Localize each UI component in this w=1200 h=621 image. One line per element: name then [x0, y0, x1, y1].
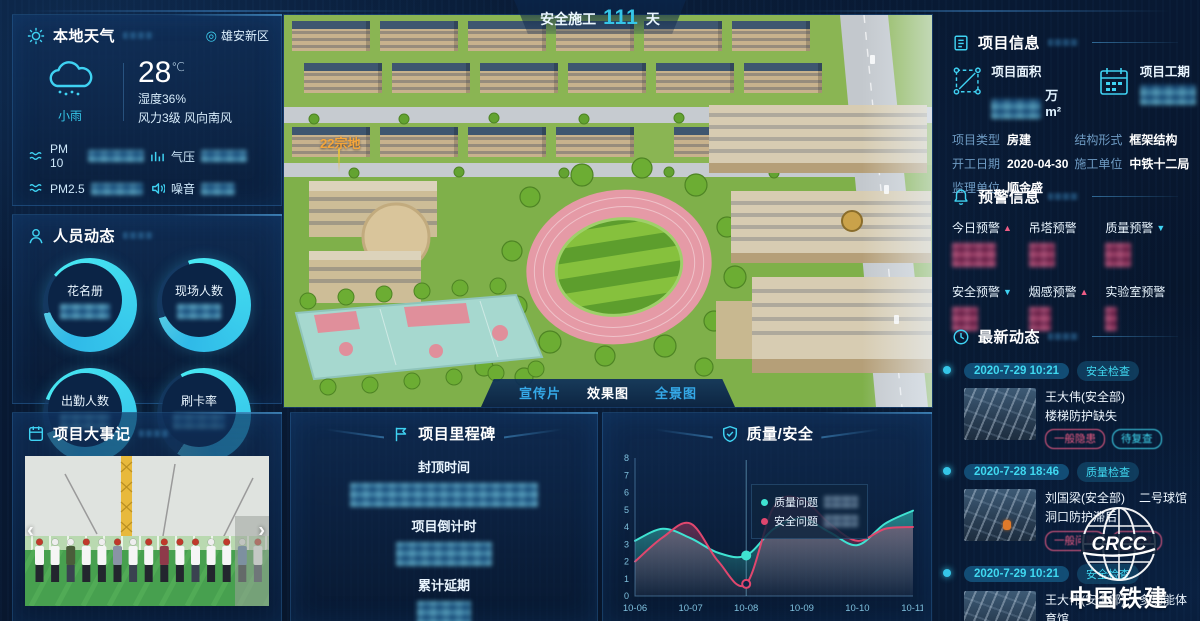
pm-waves-icon	[29, 150, 44, 163]
svg-text:10-06: 10-06	[623, 603, 647, 614]
header-wing	[821, 429, 879, 439]
bell-icon	[952, 188, 970, 206]
header-deco	[1048, 333, 1078, 340]
metric-pm10: PM 10	[29, 142, 144, 170]
delay-label: 累计延期	[291, 575, 597, 594]
item-photo	[964, 388, 1036, 440]
ring-roster: 花名册	[43, 258, 137, 352]
header-line	[1092, 42, 1178, 43]
quality-safety-title: 质量/安全	[747, 423, 814, 444]
trend-arrow: ▼	[1156, 223, 1165, 233]
item-category: 质量检查	[1077, 462, 1139, 482]
warning-cell: 质量预警▼	[1105, 219, 1178, 267]
clock-icon	[952, 328, 970, 346]
item-category: 安全检查	[1077, 361, 1139, 381]
metric-pm25: PM2.5	[29, 180, 144, 197]
project-info-panel: 项目信息 项目面积 万m² 项目工期 天	[938, 22, 1192, 174]
capping-time-label: 封顶时间	[291, 457, 597, 476]
crcc-logo: CRCC 中国铁建	[1044, 503, 1194, 613]
field-project-type: 项目类型房建	[952, 131, 1068, 148]
timeline-dot-icon	[943, 366, 951, 374]
quality-safety-panel: 质量/安全 01234567810-0610-0710-0810-0910-10…	[602, 412, 932, 621]
item-date: 2020-7-29 10:21	[964, 363, 1069, 379]
countdown-value	[396, 542, 492, 566]
svg-text:1: 1	[624, 574, 629, 584]
event-photo-image	[25, 456, 269, 606]
weather-panel: 本地天气 ◎ 雄安新区 小雨 28℃ 湿度36% 风力3级 风向南风	[12, 14, 282, 206]
divider	[123, 63, 124, 121]
milestone-panel: 项目里程碑 封顶时间 项目倒计时 累计延期	[290, 412, 598, 621]
photo-prev-arrow[interactable]: ‹	[27, 520, 34, 543]
item-issue: 楼梯防护缺失	[1045, 407, 1162, 426]
project-info-title: 项目信息	[978, 32, 1040, 53]
pressure-icon	[150, 150, 165, 163]
calendar-icon	[1097, 64, 1131, 98]
project-area-label: 项目面积	[991, 61, 1070, 80]
warning-cell: 今日预警▲	[952, 219, 1025, 267]
pm-waves-icon	[29, 182, 44, 195]
countdown-label: 项目倒计时	[291, 516, 597, 535]
header-deco	[1048, 193, 1078, 200]
header-deco	[139, 430, 169, 437]
item-photo	[964, 489, 1036, 541]
svg-text:4: 4	[624, 522, 629, 532]
capping-time-value	[350, 483, 538, 507]
top-header: 安全施工 111 天	[0, 0, 1200, 30]
personnel-panel: 人员动态 花名册 现场人数 出勤人数 刷卡率	[12, 214, 282, 404]
svg-text:10-09: 10-09	[790, 603, 814, 614]
svg-text:CRCC: CRCC	[1092, 534, 1147, 555]
header-deco	[123, 32, 153, 39]
list-item[interactable]: 2020-7-29 10:21安全检查 王大伟(安全部) 楼梯防护缺失 一般隐患…	[964, 361, 1192, 449]
status-tag: 待复查	[1112, 429, 1162, 449]
svg-text:7: 7	[624, 470, 629, 480]
header-wing	[326, 429, 384, 439]
field-structure: 结构形式框架结构	[1074, 131, 1189, 148]
svg-text:0: 0	[624, 591, 629, 601]
tab-panorama[interactable]: 全景图	[655, 383, 697, 402]
svg-text:10-08: 10-08	[734, 603, 758, 614]
personnel-title: 人员动态	[53, 225, 115, 246]
svg-text:8: 8	[624, 453, 629, 463]
item-date: 2020-7-28 18:46	[964, 464, 1069, 480]
ring-onsite: 现场人数	[157, 258, 251, 352]
svg-text:3: 3	[624, 539, 629, 549]
trend-arrow: ▲	[1003, 223, 1012, 233]
weather-condition: 小雨	[31, 60, 109, 124]
header-deco	[1048, 39, 1078, 46]
stat-project-duration: 项目工期 天	[1097, 61, 1200, 119]
safe-days-unit: 天	[646, 9, 660, 29]
svg-text:10-11: 10-11	[901, 603, 923, 614]
project-area-unit: 万m²	[1045, 85, 1071, 119]
warnings-panel: 预警信息 今日预警▲ 吊塔预警 质量预警▼ 安全预警▼ 烟感预警▲ 实验室预警	[938, 176, 1192, 314]
dashboard: 安全施工 111 天 本地天气 ◎ 雄安新区 小雨	[0, 0, 1200, 621]
metric-noise: 噪音	[150, 180, 265, 197]
header-wing	[655, 429, 713, 439]
area-measure-icon	[952, 64, 982, 98]
header-line	[1092, 196, 1178, 197]
parcel-label: 22宗地	[320, 133, 360, 152]
field-contractor: 施工单位中铁十二局	[1074, 155, 1189, 172]
svg-text:6: 6	[624, 488, 629, 498]
svg-text:2: 2	[624, 557, 629, 567]
noise-icon	[150, 182, 165, 195]
metric-pressure: 气压	[150, 142, 265, 170]
tab-promo-video[interactable]: 宣传片	[519, 383, 561, 402]
event-photo[interactable]: ‹ ›	[25, 456, 269, 606]
svg-text:5: 5	[624, 505, 629, 515]
field-start-date: 开工日期2020-04-30	[952, 155, 1068, 172]
item-photo	[964, 591, 1036, 621]
latest-title: 最新动态	[978, 326, 1040, 347]
milestone-title: 项目里程碑	[418, 423, 496, 444]
note-icon	[27, 425, 45, 443]
rain-cloud-icon	[44, 60, 96, 100]
document-icon	[952, 34, 970, 52]
warning-cell: 吊塔预警	[1029, 219, 1102, 267]
timeline-dot-icon	[943, 467, 951, 475]
temperature: 28℃	[138, 56, 232, 90]
wind-label: 风力3级 风向南风	[138, 109, 232, 128]
header-deco	[123, 232, 153, 239]
header-wing	[504, 429, 562, 439]
stat-project-area: 项目面积 万m²	[952, 61, 1071, 119]
safe-construction-label: 安全施工	[540, 9, 596, 29]
person-icon	[27, 227, 45, 245]
trend-arrow: ▲	[1080, 287, 1089, 297]
item-person: 王大伟(安全部)	[1045, 390, 1125, 404]
humidity-label: 湿度36%	[138, 90, 232, 109]
site-render	[284, 15, 932, 407]
shield-check-icon	[721, 425, 739, 443]
condition-label: 小雨	[31, 107, 109, 124]
flag-icon	[392, 425, 410, 443]
timeline-dot-icon	[943, 569, 951, 577]
delay-value	[417, 601, 471, 621]
quality-safety-chart[interactable]: 01234567810-0610-0710-0810-0910-1010-11	[613, 450, 923, 618]
view-tabs: 宣传片 效果图 全景图	[481, 379, 735, 407]
hazard-tag: 一般隐患	[1045, 429, 1105, 449]
project-duration-value	[1140, 85, 1196, 105]
project-area-value	[991, 99, 1041, 119]
header-line	[1092, 336, 1178, 337]
events-panel: 项目大事记 ‹ ›	[12, 412, 282, 621]
tab-render-view[interactable]: 效果图	[587, 383, 629, 402]
svg-text:10-07: 10-07	[678, 603, 702, 614]
photo-next-arrow[interactable]: ›	[258, 520, 265, 543]
safe-days-value: 111	[603, 6, 639, 30]
warnings-title: 预警信息	[978, 186, 1040, 207]
svg-text:10-10: 10-10	[845, 603, 869, 614]
site-3d-view[interactable]: 22宗地 宣传片 效果图 全景图	[283, 14, 933, 408]
trend-arrow: ▼	[1003, 287, 1012, 297]
crcc-globe-icon: CRCC	[1073, 503, 1165, 585]
crcc-logo-text: 中国铁建	[1044, 579, 1194, 613]
project-duration-label: 项目工期	[1140, 61, 1200, 80]
events-title: 项目大事记	[53, 423, 131, 444]
